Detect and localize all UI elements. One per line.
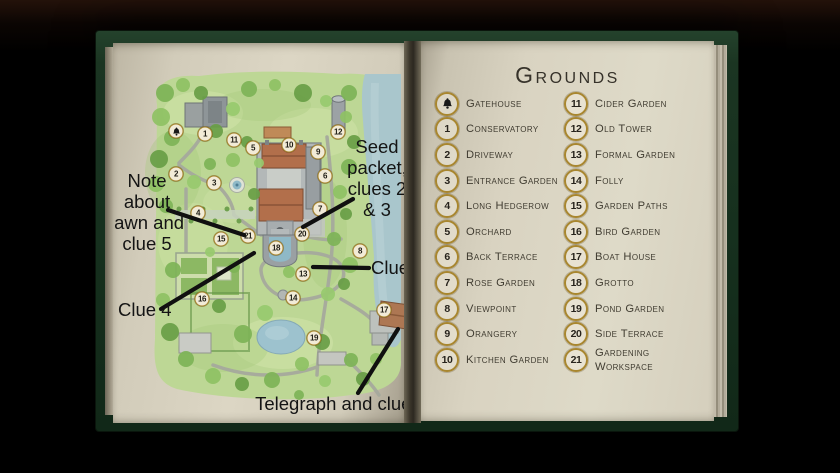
legend-number-badge: 9 [435, 322, 459, 346]
map-marker: 15 [214, 232, 229, 247]
right-page-edge [714, 45, 727, 417]
screenshot-root: 1 2 3 4 5 6 7 8 9 10 11 12 13 14 15 16 1… [0, 0, 840, 473]
left-page-edge [105, 47, 113, 415]
legend-entry: 21 Gardening Workspace [564, 347, 707, 373]
guide-book: 1 2 3 4 5 6 7 8 9 10 11 12 13 14 15 16 1… [95, 30, 739, 432]
legend-number-badge: 5 [435, 220, 459, 244]
legend-number-badge: 17 [564, 245, 588, 269]
legend-entry: 18 Grotto [564, 270, 707, 296]
map-marker: 3 [207, 176, 222, 191]
map-marker: 11 [227, 133, 242, 148]
page-title: Grounds [421, 62, 714, 89]
legend-number-badge: 6 [435, 245, 459, 269]
legend-entry-label: Garden Paths [595, 199, 707, 213]
legend-number-badge: 10 [435, 348, 459, 372]
legend-column-right: 11 Cider Garden 12 Old Tower 13 Formal G… [564, 91, 707, 373]
map-marker: 13 [296, 267, 311, 282]
legend-number-badge: 12 [564, 117, 588, 141]
map-marker [169, 124, 184, 139]
legend-number-badge: 1 [435, 117, 459, 141]
legend-entry: 11 Cider Garden [564, 91, 707, 117]
legend-number-badge: 11 [564, 92, 588, 116]
annotation-clue-1: Clue 1 [371, 257, 404, 278]
map-marker: 4 [191, 206, 206, 221]
legend-entry-label: Grotto [595, 276, 707, 290]
map-marker: 8 [353, 244, 368, 259]
legend-page: Grounds Gatehouse 1 Conservatory 2 Drive… [421, 41, 714, 421]
legend-entry-label: Pond Garden [595, 302, 707, 316]
legend-entry: 12 Old Tower [564, 117, 707, 143]
map-marker: 18 [269, 241, 284, 256]
legend-number-badge: 14 [564, 169, 588, 193]
legend-entry-label: Cider Garden [595, 97, 707, 111]
bell-icon [171, 126, 181, 136]
annotation-seed-packet-clues-2-3: Seedpacket,clues 2& 3 [335, 136, 404, 220]
legend-number-badge [435, 92, 459, 116]
legend-entry-label: Boat House [595, 250, 707, 264]
legend-number-badge: 7 [435, 271, 459, 295]
legend-number-badge: 8 [435, 297, 459, 321]
legend-entry-label: Bird Garden [595, 225, 707, 239]
annotation-telegraph-clue-6: Telegraph and clue 6 [253, 393, 404, 414]
legend-entry: 13 Formal Garden [564, 142, 707, 168]
legend-entry: 20 Side Terrace [564, 321, 707, 347]
legend-number-badge: 13 [564, 143, 588, 167]
map-marker: 19 [307, 331, 322, 346]
legend-entry-label: Formal Garden [595, 148, 707, 162]
map-marker: 10 [282, 138, 297, 153]
bell-icon [441, 97, 454, 110]
map-page: 1 2 3 4 5 6 7 8 9 10 11 12 13 14 15 16 1… [113, 43, 404, 423]
legend-number-badge: 3 [435, 169, 459, 193]
legend-number-badge: 21 [564, 348, 588, 372]
legend-entry: 16 Bird Garden [564, 219, 707, 245]
legend-entry-label: Side Terrace [595, 327, 707, 341]
map-marker: 14 [286, 291, 301, 306]
map-marker: 6 [318, 169, 333, 184]
legend-number-badge: 15 [564, 194, 588, 218]
map-marker: 1 [198, 127, 213, 142]
legend-number-badge: 4 [435, 194, 459, 218]
legend-entry: 19 Pond Garden [564, 296, 707, 322]
legend-entry: 17 Boat House [564, 245, 707, 271]
book-spine [404, 41, 421, 423]
map-marker: 7 [313, 202, 328, 217]
annotation-clue-4: Clue 4 [118, 299, 182, 320]
legend-number-badge: 20 [564, 322, 588, 346]
map-marker: 20 [295, 227, 310, 242]
legend-entry: 15 Garden Paths [564, 193, 707, 219]
map-marker: 16 [195, 292, 210, 307]
legend-number-badge: 18 [564, 271, 588, 295]
legend-number-badge: 19 [564, 297, 588, 321]
legend-number-badge: 2 [435, 143, 459, 167]
legend-entry: 14 Folly [564, 168, 707, 194]
annotation-note-lawn-clue5: Noteaboutlawn andclue 5 [113, 170, 185, 254]
map-marker: 9 [311, 145, 326, 160]
map-marker: 5 [246, 141, 261, 156]
legend-entry-label: Old Tower [595, 122, 707, 136]
legend-number-badge: 16 [564, 220, 588, 244]
legend-entry-label: Gardening Workspace [595, 346, 707, 374]
legend-entry-label: Folly [595, 174, 707, 188]
map-marker: 21 [241, 229, 256, 244]
map-marker: 17 [377, 303, 392, 318]
